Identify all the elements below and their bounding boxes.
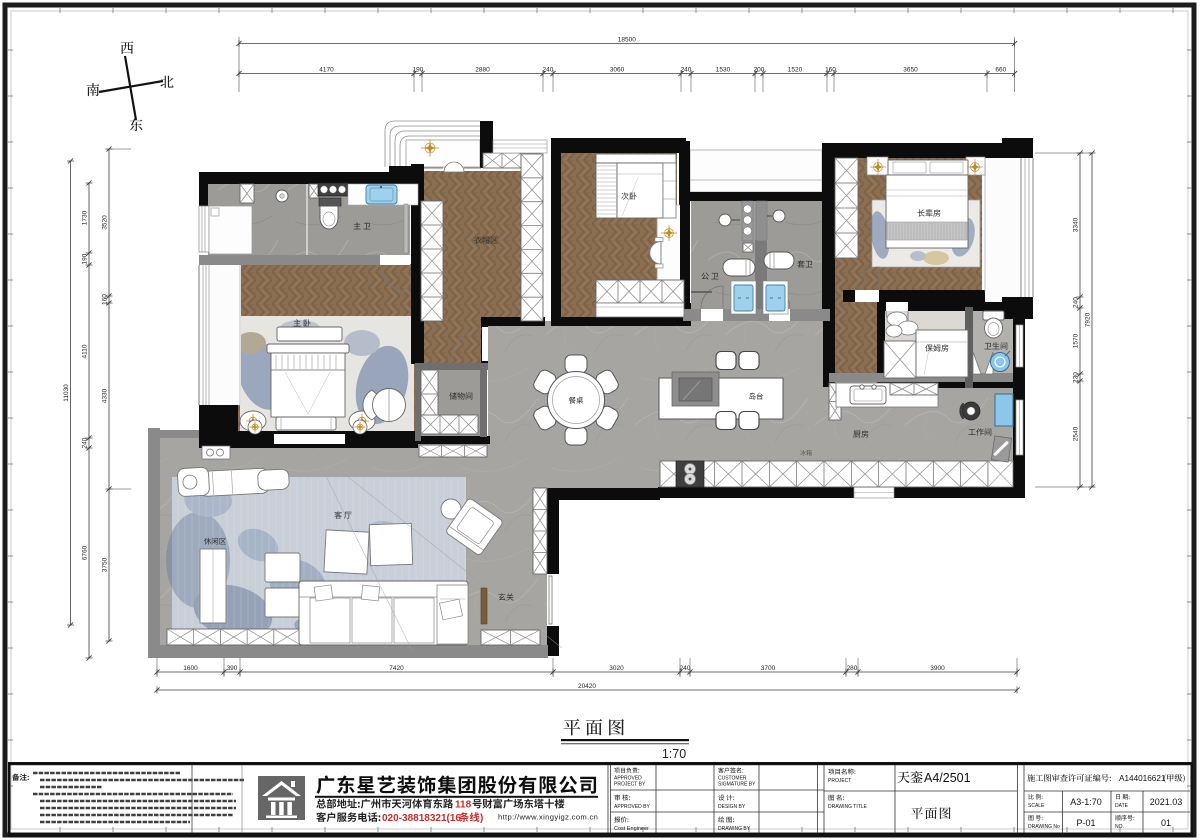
svg-text:190: 190 [413,66,424,73]
svg-text:240: 240 [543,66,554,73]
svg-text:7920: 7920 [1085,312,1092,327]
svg-text:11030: 11030 [63,384,70,402]
svg-text:1730: 1730 [82,210,89,225]
svg-text:P-01: P-01 [1076,818,1095,828]
svg-text:DRAWING No: DRAWING No [1028,824,1060,830]
svg-text:A3-1:70: A3-1:70 [1070,797,1102,807]
svg-text:160: 160 [102,294,109,305]
svg-text:280: 280 [847,665,858,672]
svg-text:3650: 3650 [903,66,918,73]
svg-text:4170: 4170 [319,66,334,73]
svg-text:PROJECT BY: PROJECT BY [614,782,646,788]
svg-text:DRAWING BY: DRAWING BY [718,826,751,832]
svg-text:6760: 6760 [82,545,89,560]
svg-text:4330: 4330 [102,388,109,403]
svg-text:DRAWING TITLE: DRAWING TITLE [828,804,868,810]
svg-text:http://www.xingyigz.com.cn: http://www.xingyigz.com.cn [498,813,598,822]
svg-text:3060: 3060 [610,66,625,73]
svg-text:3750: 3750 [102,557,109,572]
svg-text:3520: 3520 [102,215,109,230]
svg-text:PROJECT: PROJECT [828,778,851,784]
svg-text:A4/2501: A4/2501 [924,771,971,785]
svg-text:DATE: DATE [1115,803,1129,809]
svg-text:240: 240 [681,66,692,73]
svg-text:3340: 3340 [1073,217,1080,232]
svg-text:4110: 4110 [82,344,89,358]
svg-text:3020: 3020 [609,665,624,672]
svg-text:660: 660 [995,66,1006,73]
svg-text:SCALE: SCALE [1028,803,1045,809]
svg-text:020-38818321(16: 020-38818321(16 [382,813,461,824]
svg-text:240: 240 [680,665,691,672]
svg-text:230: 230 [1073,372,1080,383]
svg-text:Cost Engineer: Cost Engineer [614,826,649,832]
svg-text:200: 200 [754,66,765,73]
svg-text:SIGMATURE BY: SIGMATURE BY [718,782,756,788]
svg-text:2880: 2880 [475,66,490,73]
svg-text:01: 01 [1161,818,1171,828]
svg-text:118: 118 [455,800,472,811]
svg-text:18500: 18500 [618,36,636,43]
svg-text:APPROVED BY: APPROVED BY [614,804,651,810]
svg-text:1520: 1520 [788,66,803,73]
svg-text:NO.: NO. [1115,824,1124,830]
svg-text:A144016621: A144016621 [1119,774,1166,783]
svg-text:3700: 3700 [761,665,776,672]
svg-text:3900: 3900 [930,665,945,672]
svg-text:20420: 20420 [578,683,596,690]
svg-text:1530: 1530 [716,66,731,73]
svg-text:1600: 1600 [183,665,198,672]
svg-text:1570: 1570 [1073,333,1080,348]
svg-text:240: 240 [82,437,89,448]
svg-text:2540: 2540 [1073,426,1080,441]
svg-text:7420: 7420 [389,665,404,672]
svg-text:1:70: 1:70 [662,747,686,761]
svg-text:2021.03: 2021.03 [1150,797,1183,807]
svg-text:): ) [480,813,483,824]
svg-text:DESIGN BY: DESIGN BY [718,804,746,810]
svg-text:390: 390 [227,665,238,672]
svg-text:160: 160 [825,66,836,73]
svg-text:240: 240 [1073,297,1080,308]
svg-text:190: 190 [82,253,89,264]
